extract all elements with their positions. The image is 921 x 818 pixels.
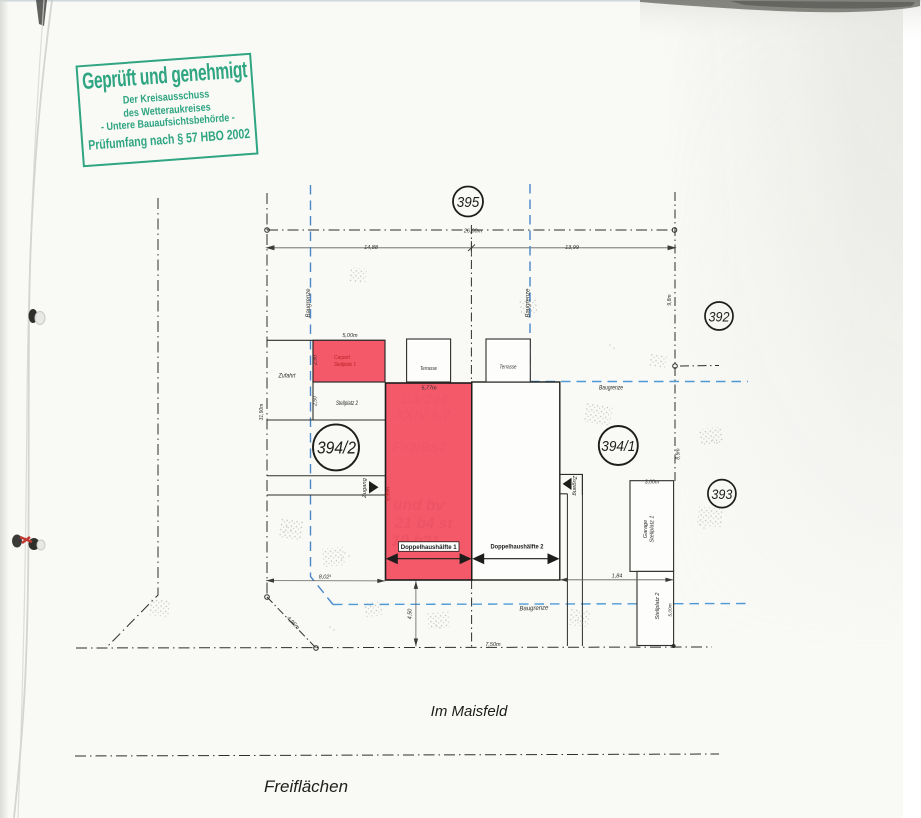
svg-text:Baugrenze: Baugrenze bbox=[519, 604, 549, 612]
svg-text:Terrasse: Terrasse bbox=[500, 365, 518, 371]
svg-text:Carport: Carport bbox=[334, 355, 350, 361]
svg-text:1,84: 1,84 bbox=[612, 574, 623, 580]
svg-text:7,50m: 7,50m bbox=[485, 642, 501, 648]
svg-text:Zugang: Zugang bbox=[571, 475, 577, 496]
svg-text:13,99: 13,99 bbox=[565, 245, 579, 251]
svg-text:8,9m: 8,9m bbox=[676, 448, 682, 459]
svg-text:2,90: 2,90 bbox=[313, 355, 319, 366]
svg-text:Baugrenze: Baugrenze bbox=[306, 288, 312, 318]
svg-text:4,50: 4,50 bbox=[408, 608, 414, 620]
svg-text:8,02¹: 8,02¹ bbox=[319, 575, 332, 581]
svg-text:14,88: 14,88 bbox=[364, 245, 379, 251]
svg-text:Garage: Garage bbox=[643, 520, 649, 538]
svg-text:Doppelhaushälfte 2: Doppelhaushälfte 2 bbox=[491, 544, 544, 551]
svg-text:5,77m: 5,77m bbox=[421, 386, 437, 392]
svg-text:393: 393 bbox=[711, 486, 732, 502]
svg-text:2,50: 2,50 bbox=[313, 396, 319, 407]
svg-text:Stellplatz 2: Stellplatz 2 bbox=[655, 593, 661, 620]
svg-text:26,00m: 26,00m bbox=[463, 229, 483, 235]
svg-text:394/2: 394/2 bbox=[317, 438, 356, 458]
svg-text:31,90m: 31,90m bbox=[259, 404, 265, 421]
svg-text:5,00m: 5,00m bbox=[668, 603, 674, 616]
svg-text:3,00m: 3,00m bbox=[645, 480, 660, 486]
svg-text:Stellplatz 2: Stellplatz 2 bbox=[336, 400, 358, 407]
svg-text:Stellplatz 1: Stellplatz 1 bbox=[650, 516, 656, 543]
svg-text:XXIV 8.7: XXIV 8.7 bbox=[394, 407, 452, 424]
svg-text:9,8m: 9,8m bbox=[667, 294, 673, 305]
svg-text:392: 392 bbox=[709, 309, 730, 325]
svg-text:4,96m: 4,96m bbox=[285, 616, 300, 631]
svg-text:21 b4 st: 21 b4 st bbox=[394, 515, 454, 533]
svg-text:1:3:294: 1:3:294 bbox=[399, 391, 448, 408]
svg-text:Zugang: Zugang bbox=[362, 477, 368, 498]
svg-text:und bv: und bv bbox=[393, 497, 445, 515]
svg-text:395: 395 bbox=[457, 194, 480, 211]
svg-text:Baugrenze: Baugrenze bbox=[599, 386, 624, 392]
svg-text:Zufahrt: Zufahrt bbox=[278, 373, 297, 380]
svg-text:9,99m: 9,99m bbox=[386, 487, 392, 501]
svg-text:Im Maisfeld: Im Maisfeld bbox=[431, 703, 508, 720]
svg-text:Freiflächen: Freiflächen bbox=[264, 777, 348, 796]
svg-text:Terrasse: Terrasse bbox=[420, 366, 438, 372]
svg-text:Doppelhaushälfte 1: Doppelhaushälfte 1 bbox=[401, 544, 457, 551]
svg-text:Stellplatz 1: Stellplatz 1 bbox=[334, 362, 356, 368]
svg-text:5,00m: 5,00m bbox=[342, 333, 358, 339]
svg-text:394/1: 394/1 bbox=[601, 438, 635, 455]
svg-text:FYNB57: FYNB57 bbox=[392, 439, 447, 456]
